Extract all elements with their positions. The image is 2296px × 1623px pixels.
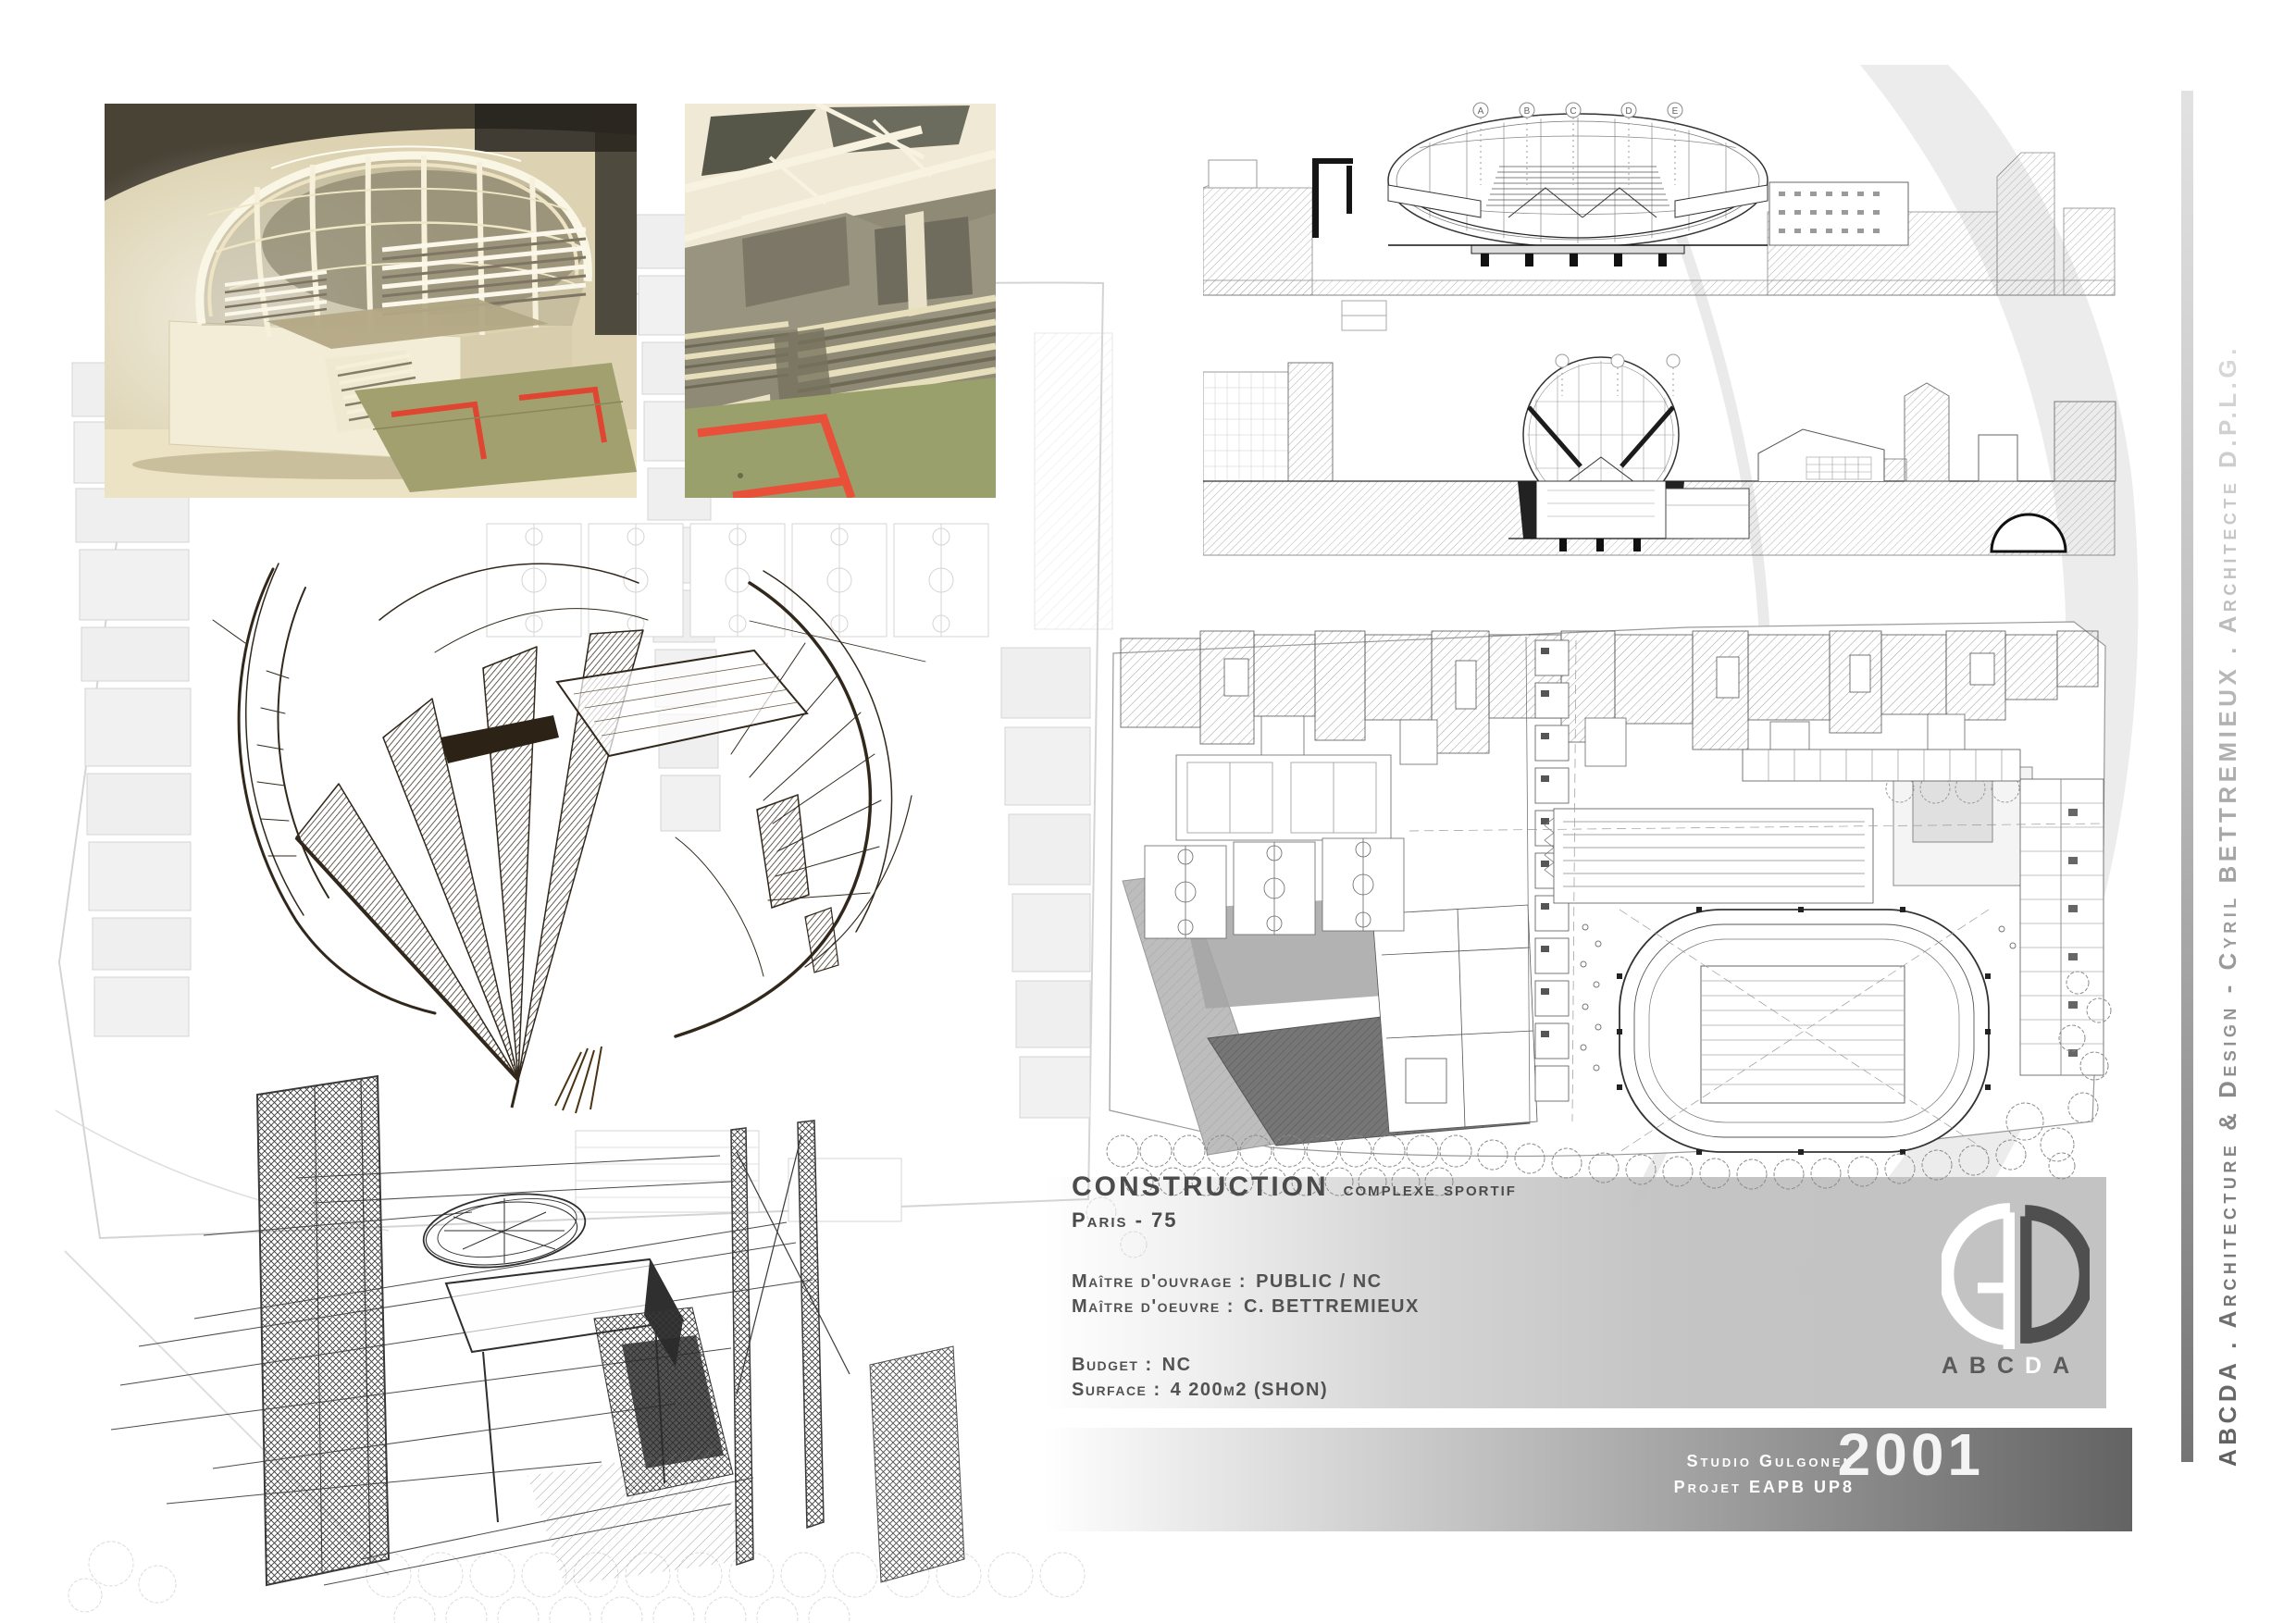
field-surface-value: 4 200m2 (SHON)	[1171, 1378, 1329, 1403]
field-oeuvre-label: Maître d'oeuvre :	[1072, 1295, 1235, 1319]
sidebar-rule	[2181, 91, 2193, 1462]
project-info-block: CONSTRUCTION complexe sportif Paris - 75…	[1072, 1171, 1905, 1403]
model-photo-exterior	[105, 104, 637, 498]
existing-buildings-strip	[1121, 631, 2098, 766]
field-ouvrage-label: Maître d'ouvrage :	[1072, 1270, 1247, 1295]
portfolio-page: Studio Gulgonen Projet EAPB UP8 2001	[0, 0, 2296, 1623]
svg-text:E: E	[1672, 106, 1679, 117]
footer-project-ref: Projet EAPB UP8	[1674, 1474, 1855, 1500]
concept-sketch-perspective	[83, 1041, 972, 1623]
field-budget-label: Budget :	[1072, 1353, 1153, 1378]
field-oeuvre-value: C. BETTREMIEUX	[1244, 1295, 1420, 1319]
project-location: Paris - 75	[1072, 1208, 1905, 1233]
wordmark-letter: A	[2053, 1353, 2080, 1379]
tennis-courts	[1176, 755, 1391, 840]
left-facade	[1203, 363, 1333, 481]
concept-sketch-plan	[157, 532, 972, 1110]
footer-studio: Studio Gulgonen	[1674, 1448, 1855, 1474]
project-title: CONSTRUCTION	[1072, 1171, 1329, 1203]
center-building	[1372, 905, 1537, 1133]
section-drawing-long: A B C D E	[1203, 88, 2128, 333]
svg-text:C: C	[1570, 106, 1576, 117]
sketch-tree-stroke	[555, 1047, 602, 1113]
arena-plan	[1617, 907, 1991, 1155]
section-drawing-cross	[1203, 350, 2128, 572]
floor-plan-drawing	[1095, 603, 2127, 1200]
sidebar-credit: ABCDA . Architecture & Design - Cyril BE…	[2214, 344, 2242, 1467]
wordmark-letter: D	[2025, 1353, 2053, 1379]
footer-credits: Studio Gulgonen Projet EAPB UP8	[1674, 1448, 1855, 1500]
neighbor-building	[1769, 182, 1908, 245]
svg-text:A: A	[1478, 106, 1484, 117]
basketball-courts	[1145, 838, 1404, 938]
field-surface-label: Surface :	[1072, 1378, 1161, 1403]
abcda-monogram-icon	[1942, 1199, 2090, 1349]
wordmark-letter: C	[1997, 1353, 2025, 1379]
arena-section	[1388, 106, 1768, 266]
section-cut-wall	[1312, 158, 1353, 238]
svg-text:B: B	[1524, 106, 1531, 117]
wordmark-letter: B	[1969, 1353, 1997, 1379]
model-photo-interior	[685, 104, 996, 498]
field-ouvrage-value: PUBLIC / NC	[1256, 1270, 1383, 1295]
footer-year: 2001	[1838, 1420, 1984, 1489]
plaza-pool	[1886, 767, 2032, 886]
project-subtitle: complexe sportif	[1344, 1177, 1517, 1201]
svg-text:D: D	[1625, 106, 1632, 117]
sketch-oval	[419, 1184, 590, 1277]
wordmark-letter: A	[1942, 1353, 1969, 1379]
abcda-wordmark: ABCDA	[1932, 1353, 2090, 1380]
footer-bar: Studio Gulgonen Projet EAPB UP8 2001	[1044, 1428, 2132, 1531]
swimming-pool	[1545, 809, 1873, 903]
field-budget-value: NC	[1162, 1353, 1192, 1378]
